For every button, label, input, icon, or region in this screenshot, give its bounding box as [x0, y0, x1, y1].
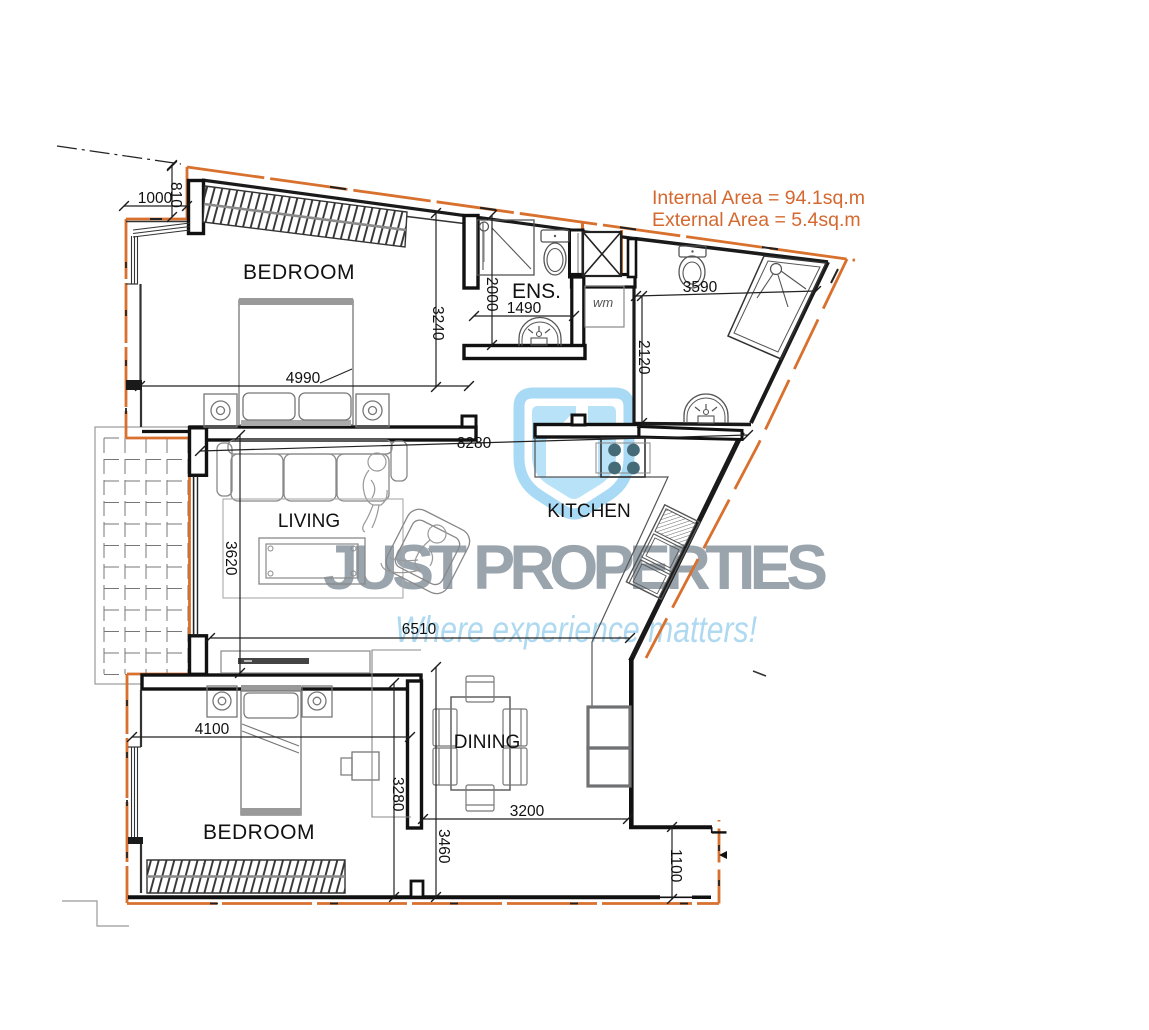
- svg-text:KITCHEN: KITCHEN: [547, 501, 630, 522]
- svg-text:3280: 3280: [389, 777, 406, 812]
- svg-text:810: 810: [167, 182, 184, 208]
- svg-text:External Area = 5.4sq.m: External Area = 5.4sq.m: [652, 209, 861, 231]
- svg-text:8280: 8280: [457, 435, 492, 452]
- svg-text:4990: 4990: [286, 370, 321, 387]
- svg-text:3200: 3200: [510, 803, 545, 820]
- svg-text:BEDROOM: BEDROOM: [203, 821, 315, 844]
- svg-text:3590: 3590: [683, 279, 718, 296]
- svg-text:LIVING: LIVING: [278, 511, 340, 532]
- svg-text:2120: 2120: [635, 340, 652, 375]
- svg-text:Internal Area = 94.1sq.m: Internal Area = 94.1sq.m: [652, 187, 865, 209]
- svg-text:3620: 3620: [222, 541, 239, 576]
- svg-text:6510: 6510: [402, 621, 437, 638]
- svg-text:2000: 2000: [483, 277, 500, 312]
- svg-text:wm: wm: [593, 295, 613, 310]
- svg-text:3240: 3240: [429, 306, 446, 341]
- svg-text:BEDROOM: BEDROOM: [243, 261, 355, 284]
- svg-text:DINING: DINING: [454, 732, 521, 753]
- svg-text:3460: 3460: [435, 829, 452, 864]
- svg-text:Where experience matters!: Where experience matters!: [395, 609, 757, 650]
- svg-text:4100: 4100: [195, 721, 230, 738]
- svg-text:JUST PROPERTIES: JUST PROPERTIES: [323, 533, 829, 603]
- svg-text:1100: 1100: [667, 849, 684, 883]
- svg-text:ENS.: ENS.: [512, 280, 561, 303]
